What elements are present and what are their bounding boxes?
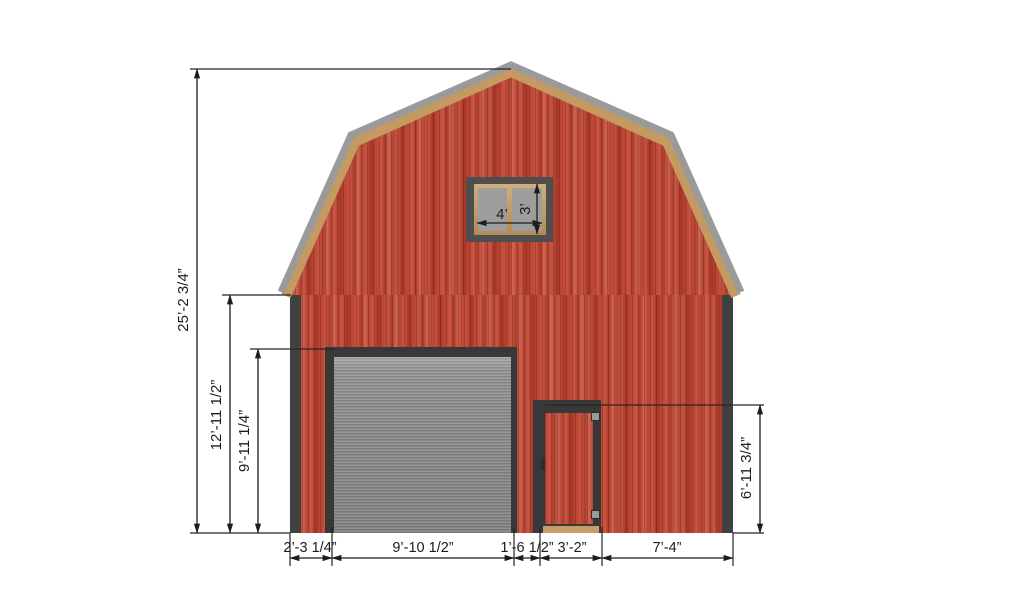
dim-label-side-door-width: 3’-2” xyxy=(557,540,586,556)
corner-trim-left xyxy=(290,295,301,533)
dim-label-garage-door-width: 9’-10 1/2” xyxy=(392,540,453,556)
side-door-hinge-bottom-icon xyxy=(591,510,600,519)
corner-trim-right xyxy=(722,295,733,533)
side-door-hinge-top-icon xyxy=(591,412,600,421)
dim-label-door-gap: 1’-6 1/2” xyxy=(500,540,553,556)
garage-door xyxy=(334,357,511,533)
side-door-threshold xyxy=(543,526,599,533)
dim-label-overall-height: 25’-2 3/4” xyxy=(175,268,192,331)
elevation-drawing: 25’-2 3/4” 12’-11 1/2” 9’-11 1/4” 6’-11 … xyxy=(0,0,1024,603)
side-door-panel xyxy=(545,413,593,524)
loft-window-pane-left xyxy=(478,188,507,231)
side-door-handle-icon xyxy=(541,459,545,470)
dim-label-garage-door-height: 9’-11 1/4” xyxy=(236,410,253,472)
dim-label-side-door-height: 6’-11 3/4” xyxy=(738,437,755,499)
loft-window-pane-right xyxy=(512,188,542,231)
dim-label-right-offset: 7’-4” xyxy=(652,540,681,556)
dim-label-left-offset: 2’-3 1/4” xyxy=(283,540,336,556)
dim-label-wall-height: 12’-11 1/2” xyxy=(208,380,225,451)
